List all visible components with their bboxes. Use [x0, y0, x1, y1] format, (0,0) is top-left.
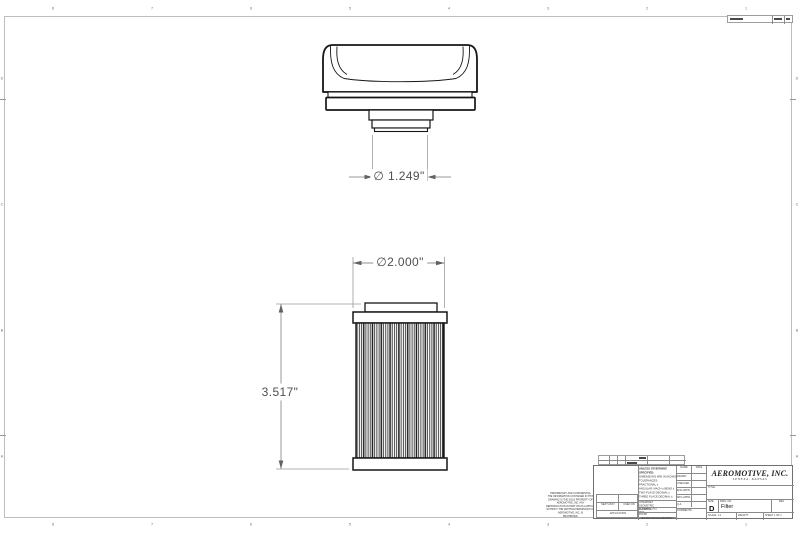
side-view-filter-element [353, 303, 447, 470]
proprietary-text: PROPRIETARY AND CONFIDENTIAL THE INFORMA… [543, 492, 597, 518]
material-label: MATERIAL [639, 508, 651, 511]
top-view-cap [323, 45, 477, 132]
dim-label-cap-port-diameter: ∅ 1.249" [370, 169, 427, 183]
rev-label: REV [779, 500, 784, 503]
comments-label: COMMENTS: [677, 509, 692, 512]
dim-label-filter-od: ∅2.000" [373, 255, 427, 269]
weight-field: WEIGHT: [736, 512, 763, 520]
rev-field: REV [771, 499, 794, 512]
uos-header: UNLESS OTHERWISE SPECIFIED: [639, 467, 677, 475]
approval-row-label: ENG APPR. [677, 489, 690, 492]
used-on-label: USED ON [618, 503, 639, 506]
scale-field: SCALE: 1:1 [706, 512, 736, 520]
proprietary-note: PROPRIETARY AND CONFIDENTIAL THE INFORMA… [543, 492, 597, 519]
dim-label-filter-height: 3.517" [259, 385, 302, 399]
approval-row-label: MFG APPR. [677, 496, 691, 499]
application-label: APPLICATION [597, 512, 639, 515]
name-header: NAME [676, 466, 691, 469]
sheet-field: SHEET 1 OF 1 [763, 512, 794, 520]
next-assy-label: NEXT ASSY [597, 503, 618, 506]
date-header: DATE [691, 466, 706, 469]
dwg-no-field: DWG. NO. Filter [718, 499, 771, 512]
dwg-no-label: DWG. NO. [720, 500, 732, 503]
application-table: NEXT ASSY USED ON APPLICATION [596, 494, 638, 518]
do-not-scale-label: DO NOT SCALE DRAWING [638, 517, 676, 520]
size-label: SIZE [708, 500, 714, 503]
approval-row-label: DRAWN [677, 475, 686, 478]
size-field: SIZE D [706, 499, 718, 512]
title-block: NEXT ASSY USED ON APPLICATION UNLESS OTH… [593, 465, 793, 519]
approval-row-label: Q.A. [677, 503, 682, 506]
company-block: AEROMOTIVE, INC. LENEXA, KANSAS [706, 466, 794, 485]
company-location: LENEXA, KANSAS [702, 478, 799, 481]
revision-strip [598, 455, 685, 465]
approval-row-label: CHECKED [677, 482, 689, 485]
drawing-sheet: 8765432187654321DCBADCBA [0, 0, 800, 533]
scale-text: SCALE: 1:1 [708, 514, 721, 517]
company-name: AEROMOTIVE, INC. [706, 469, 794, 478]
weight-label: WEIGHT: [738, 514, 748, 517]
title-field: TITLE: [706, 485, 794, 499]
dwg-no-value: Filter [721, 504, 733, 510]
tolerance-block: UNLESS OTHERWISE SPECIFIED: DIMENSIONS A… [638, 466, 676, 500]
finish-label: FINISH [639, 513, 647, 516]
title-label: TITLE: [708, 486, 716, 489]
uos-line: THREE PLACE DECIMAL ± [639, 495, 677, 499]
revision-table [727, 15, 793, 23]
sheet-text: SHEET 1 OF 1 [765, 514, 782, 517]
